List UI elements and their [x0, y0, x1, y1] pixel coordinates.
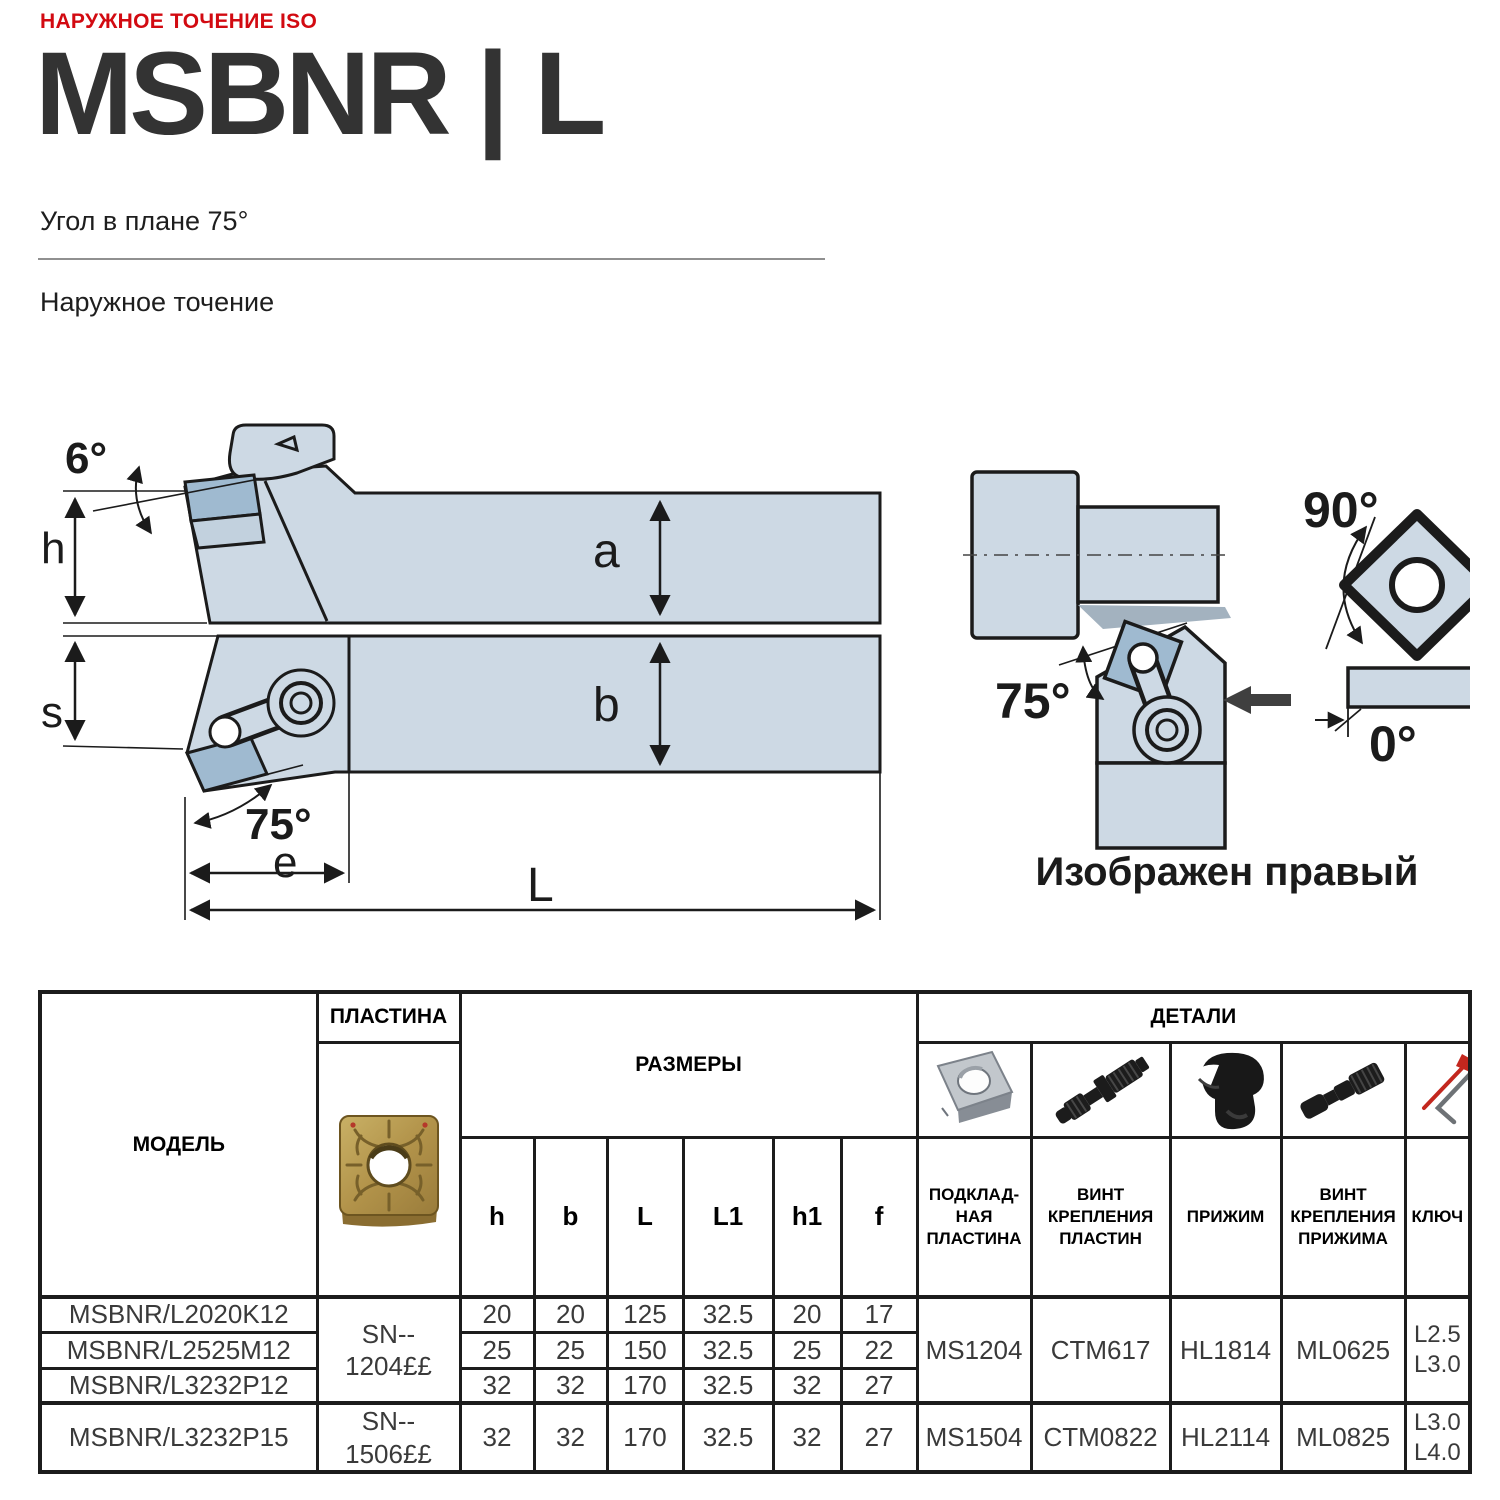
model-cell: MSBNR/L3232P12: [40, 1368, 317, 1403]
table-row: MSBNR/L2020K12 SN-- 1204££ 20 20 125 32.…: [40, 1297, 1470, 1332]
b-cell: 32: [534, 1368, 607, 1403]
col-header-insert: ПЛАСТИНА: [317, 992, 460, 1042]
h-cell: 32: [460, 1368, 534, 1403]
drawing-caption: Изображен правый: [1036, 850, 1419, 894]
insert-angle-label: 90°: [1303, 482, 1379, 538]
dim-col-b: b: [534, 1137, 607, 1297]
h1-cell: 32: [773, 1403, 841, 1472]
part-col-shim: ПОДКЛАД-НАЯ ПЛАСТИНА: [917, 1137, 1031, 1297]
model-cell: MSBNR/L2525M12: [40, 1332, 317, 1368]
clamp-screw-code-cell: ML0625: [1281, 1297, 1405, 1403]
f-cell: 27: [841, 1368, 917, 1403]
lead-angle-subtitle: Угол в плане 75°: [40, 206, 248, 237]
part-col-insert-screw: ВИНТ КРЕПЛЕНИЯ ПЛАСТИН: [1031, 1137, 1170, 1297]
page-title: MSBNR | L: [35, 38, 602, 150]
hex-key-photo-icon: [1410, 1046, 1471, 1134]
col-header-parts: ДЕТАЛИ: [917, 992, 1470, 1042]
L-cell: 150: [607, 1332, 683, 1368]
h-cell: 20: [460, 1297, 534, 1332]
a-dim-label: a: [593, 525, 620, 578]
feed-arrow-icon: [1223, 686, 1291, 714]
divider: [38, 258, 825, 260]
spec-table-section: МОДЕЛЬ ПЛАСТИНА РАЗМЕРЫ ДЕТАЛИ: [38, 990, 1472, 1474]
h-cell: 25: [460, 1332, 534, 1368]
insert-screw-code-cell: CTM0822: [1031, 1403, 1170, 1472]
clamp-screw-code-cell: ML0825: [1281, 1403, 1405, 1472]
L1-cell: 32.5: [683, 1403, 773, 1472]
dim-col-h1: h1: [773, 1137, 841, 1297]
clamp-screw-photo-icon: [1287, 1046, 1399, 1134]
h1-cell: 32: [773, 1368, 841, 1403]
part-col-key: КЛЮЧ: [1405, 1137, 1470, 1297]
f-cell: 17: [841, 1297, 917, 1332]
insert-photo-cell: [317, 1042, 460, 1297]
lead-angle-right-label: 75°: [995, 673, 1071, 729]
insert-screw-photo-icon: [1041, 1046, 1161, 1134]
e-dim-label: e: [273, 838, 297, 887]
s-dim-label: s: [41, 688, 63, 737]
insert-screw-photo-cell: [1031, 1042, 1170, 1137]
clamp-screw-photo-cell: [1281, 1042, 1405, 1137]
clamp-photo-icon: [1175, 1045, 1282, 1135]
tool-drawing-svg: 6° h a s b 75° e L: [35, 415, 1470, 935]
shadow-wedge: [1078, 605, 1231, 629]
dim-col-L: L: [607, 1137, 683, 1297]
f-cell: 22: [841, 1332, 917, 1368]
shim-code-cell: MS1504: [917, 1403, 1031, 1472]
L1-cell: 32.5: [683, 1297, 773, 1332]
part-col-clamp-screw: ВИНТ КРЕПЛЕНИЯ ПРИЖИМА: [1281, 1137, 1405, 1297]
insert-code-cell: SN-- 1506££: [317, 1403, 460, 1472]
clamp-code-cell: HL1814: [1170, 1297, 1281, 1403]
h-cell: 32: [460, 1403, 534, 1472]
table-row: MSBNR/L3232P15 SN-- 1506££ 32 32 170 32.…: [40, 1403, 1470, 1472]
L-cell: 170: [607, 1403, 683, 1472]
shim-code-cell: MS1204: [917, 1297, 1031, 1403]
L1-cell: 32.5: [683, 1332, 773, 1368]
b-cell: 20: [534, 1297, 607, 1332]
side-view: [185, 425, 880, 623]
L1-cell: 32.5: [683, 1368, 773, 1403]
h1-cell: 25: [773, 1332, 841, 1368]
col-header-model: МОДЕЛЬ: [40, 992, 317, 1297]
key-photo-cell: [1405, 1042, 1470, 1137]
shim-photo-icon: [922, 1046, 1028, 1134]
b-dim-label: b: [593, 679, 620, 732]
shim-photo-cell: [917, 1042, 1031, 1137]
section-label: Наружное точение: [40, 287, 274, 318]
key-code-cell: L2.5 L3.0: [1405, 1297, 1470, 1403]
zero-angle-label: 0°: [1369, 716, 1417, 772]
col-header-dimensions: РАЗМЕРЫ: [460, 992, 917, 1137]
L-dim-label: L: [527, 859, 554, 912]
dim-col-h: h: [460, 1137, 534, 1297]
L-cell: 170: [607, 1368, 683, 1403]
dim-col-f: f: [841, 1137, 917, 1297]
technical-drawing: 6° h a s b 75° e L: [35, 415, 1470, 935]
spec-table: МОДЕЛЬ ПЛАСТИНА РАЗМЕРЫ ДЕТАЛИ: [38, 990, 1472, 1474]
gold-insert-photo-icon: [333, 1108, 445, 1230]
L-cell: 125: [607, 1297, 683, 1332]
h-dim-label: h: [41, 524, 65, 573]
dim-col-L1: L1: [683, 1137, 773, 1297]
model-cell: MSBNR/L2020K12: [40, 1297, 317, 1332]
rake-angle-label: 6°: [65, 434, 107, 483]
b-cell: 32: [534, 1403, 607, 1472]
insert-code-cell: SN-- 1204££: [317, 1297, 460, 1403]
clamp-code-cell: HL2114: [1170, 1403, 1281, 1472]
key-code-cell: L3.0 L4.0: [1405, 1403, 1470, 1472]
f-cell: 27: [841, 1403, 917, 1472]
model-cell: MSBNR/L3232P15: [40, 1403, 317, 1472]
clamp-photo-cell: [1170, 1042, 1281, 1137]
part-col-clamp: ПРИЖИМ: [1170, 1137, 1281, 1297]
h1-cell: 20: [773, 1297, 841, 1332]
insert-screw-code-cell: CTM617: [1031, 1297, 1170, 1403]
b-cell: 25: [534, 1332, 607, 1368]
